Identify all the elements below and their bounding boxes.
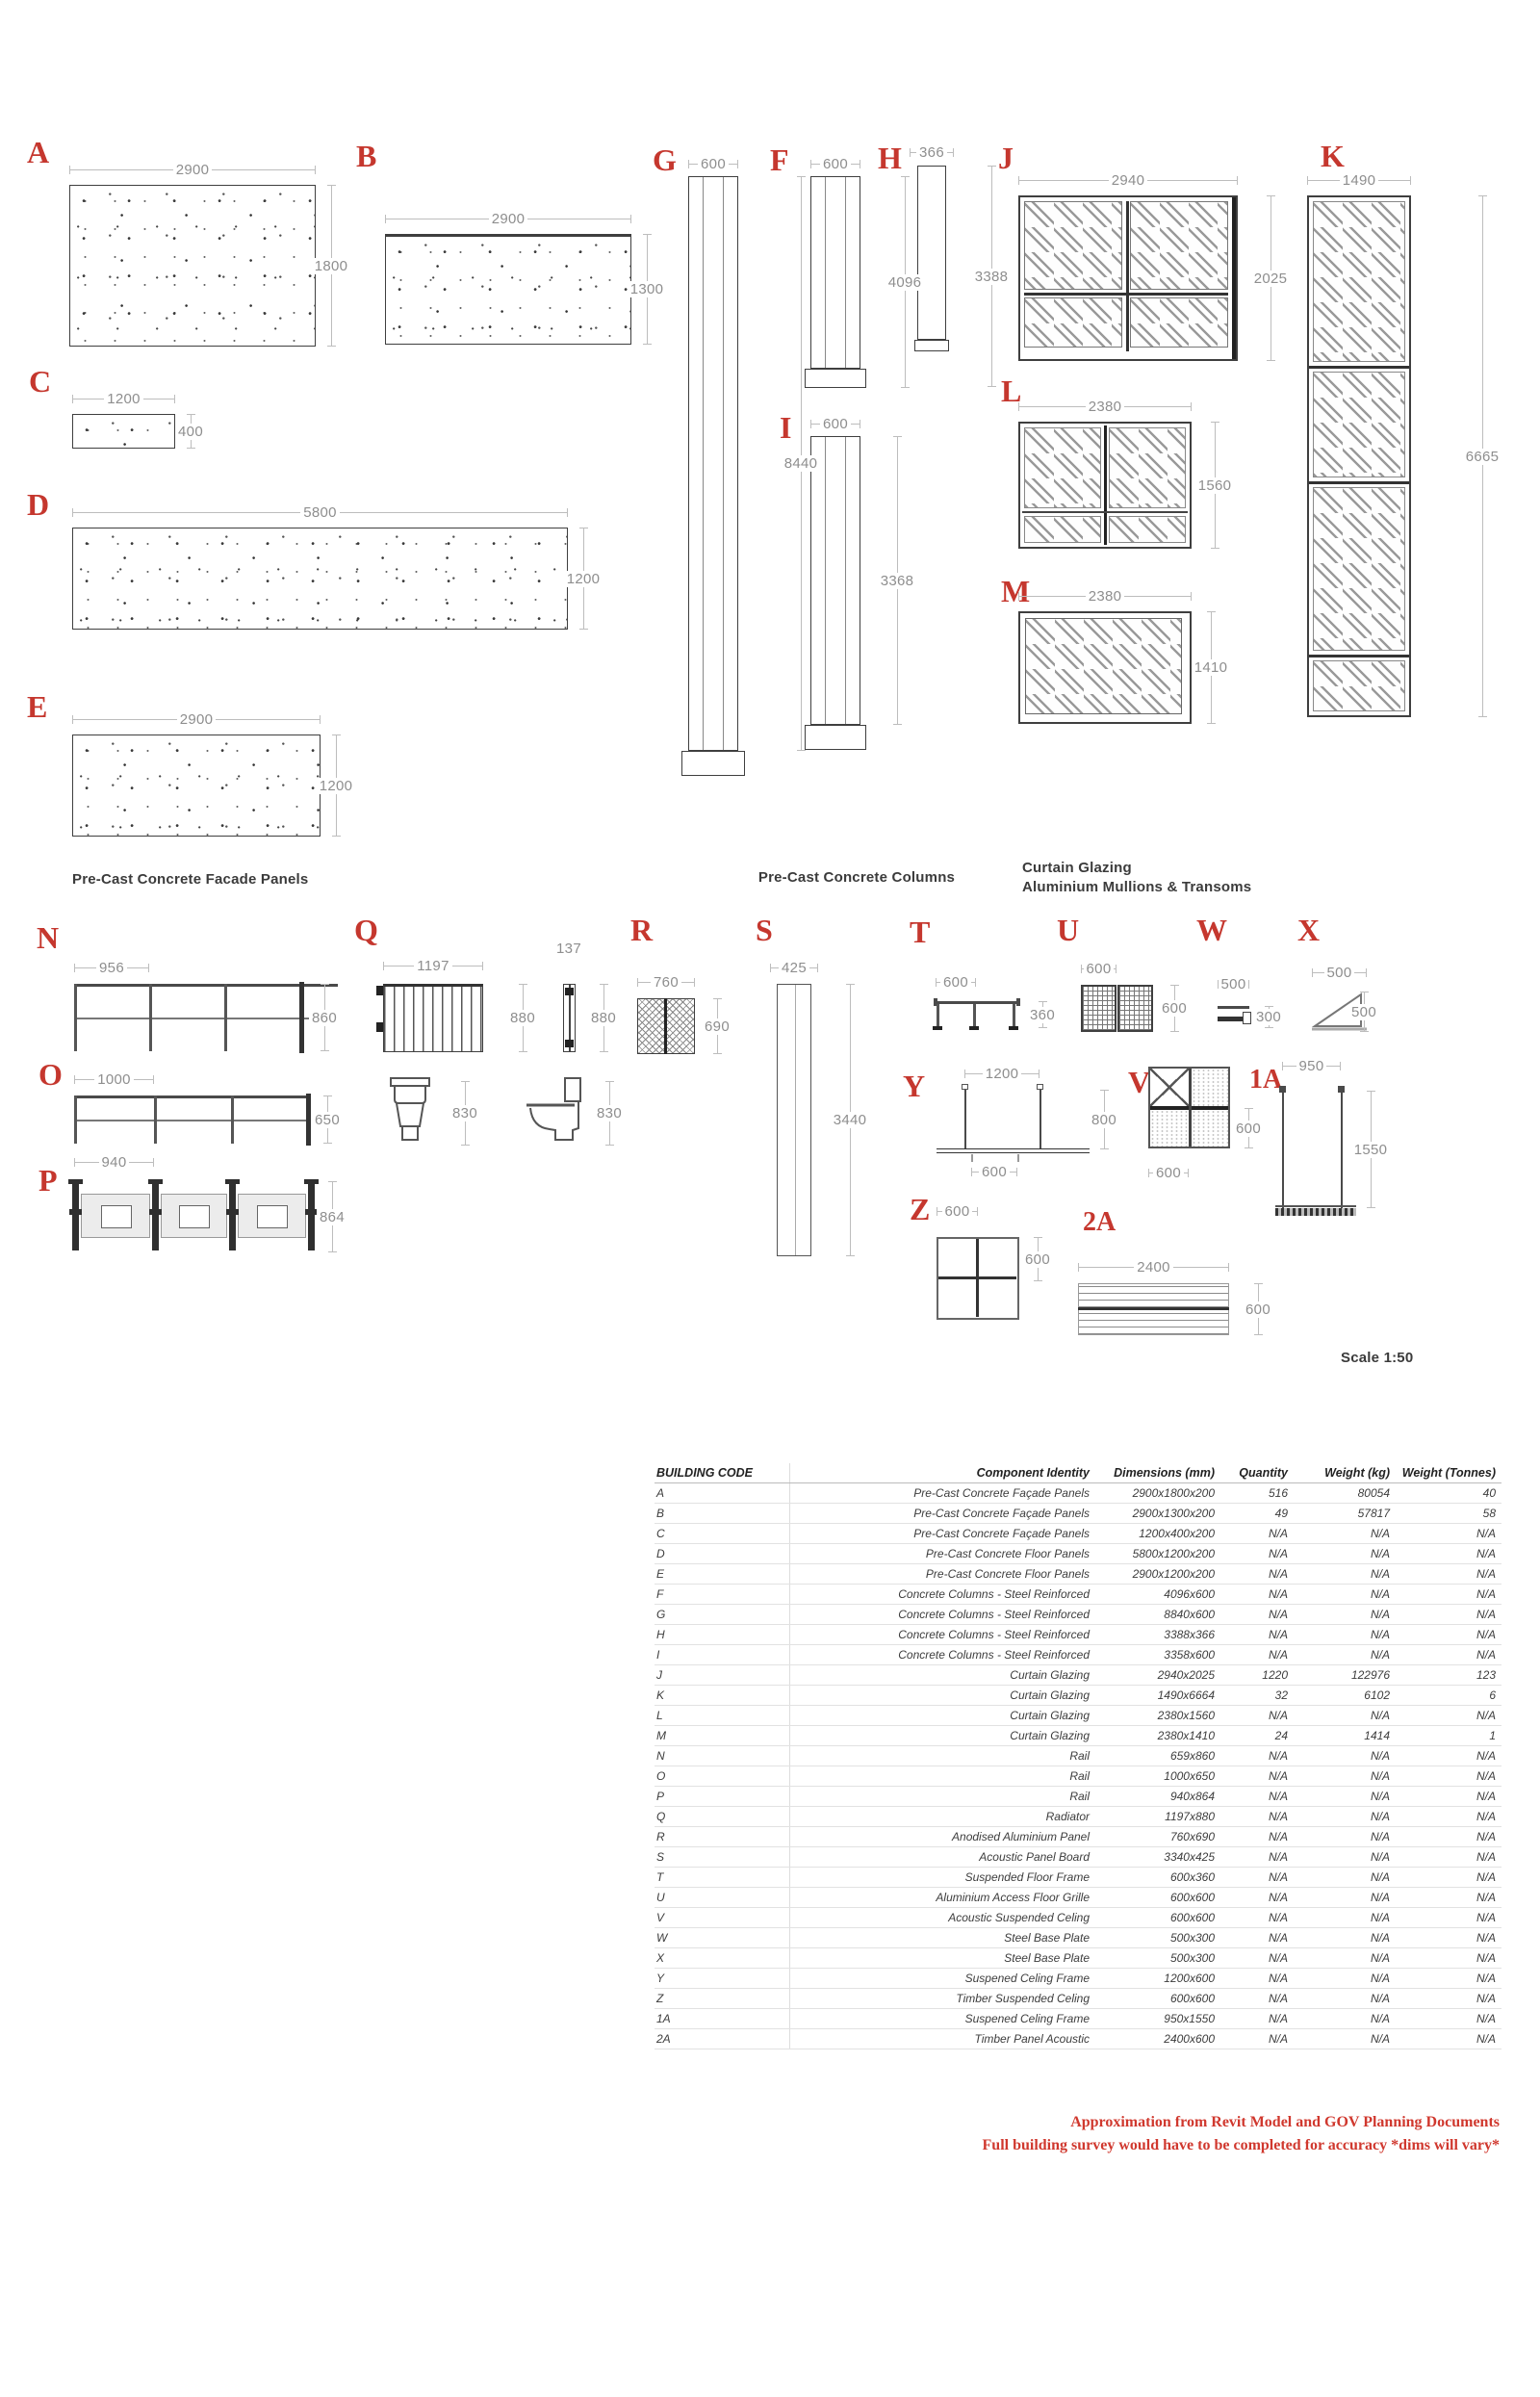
dim-y-width: 1200 — [964, 1066, 1039, 1081]
dim-h-width-label: 366 — [916, 144, 947, 161]
column-f-base — [805, 369, 866, 388]
rail-n-post — [149, 984, 152, 1051]
code-letter-k: K — [1321, 141, 1345, 171]
window-j-pane — [1130, 201, 1228, 290]
table-cell: N/A — [1396, 1766, 1501, 1787]
table-cell: N/A — [1396, 1645, 1501, 1665]
table-cell: N/A — [1220, 1585, 1294, 1605]
dim-e-height: 1200 — [328, 735, 344, 837]
timber-panel-2a-joint — [1078, 1307, 1229, 1310]
table-row: WSteel Base Plate500x300N/AN/AN/A — [654, 1928, 1501, 1948]
table-cell: 940x864 — [1095, 1787, 1220, 1807]
table-cell: N/A — [1294, 1807, 1396, 1827]
window-j — [1018, 195, 1238, 361]
table-cell: 3358x600 — [1095, 1645, 1220, 1665]
table-cell: N/A — [1220, 1564, 1294, 1585]
rail-n-end-post — [299, 982, 304, 1053]
rail-p-panel-opening — [101, 1205, 132, 1228]
table-row: FConcrete Columns - Steel Reinforced4096… — [654, 1585, 1501, 1605]
table-cell: Y — [654, 1969, 789, 1989]
table-cell: N/A — [1396, 1989, 1501, 2009]
window-j-edge — [1232, 197, 1236, 359]
dim-h-height: 3388 — [984, 166, 999, 387]
table-row: IConcrete Columns - Steel Reinforced3358… — [654, 1645, 1501, 1665]
dim-k-height-label: 6665 — [1463, 449, 1502, 465]
rail-o-top — [74, 1095, 310, 1098]
table-cell: F — [654, 1585, 789, 1605]
floor-frame-t-leg — [973, 1004, 976, 1028]
code-letter-w: W — [1196, 915, 1227, 945]
table-cell: N/A — [1396, 1524, 1501, 1544]
floor-frame-t-leg — [937, 1004, 939, 1028]
table-row: 1ASuspened Celing Frame950x1550N/AN/AN/A — [654, 2009, 1501, 2029]
dim-p-width: 940 — [74, 1154, 154, 1170]
table-cell: Curtain Glazing — [789, 1706, 1095, 1726]
rail-p-post-cap — [225, 1179, 240, 1184]
code-letter-p: P — [38, 1165, 58, 1196]
window-l — [1018, 422, 1192, 549]
timber-ceiling-z-rail — [976, 1239, 979, 1317]
table-cell: N/A — [1294, 1605, 1396, 1625]
dim-t-height: 360 — [1035, 1001, 1050, 1028]
window-l-pane — [1024, 516, 1101, 543]
table-cell: P — [654, 1787, 789, 1807]
floor-grille-u — [1081, 985, 1116, 1032]
table-cell: N/A — [1294, 1948, 1396, 1969]
table-cell: N/A — [1396, 1564, 1501, 1585]
table-cell: G — [654, 1605, 789, 1625]
dim-1a-height: 1550 — [1363, 1091, 1378, 1208]
window-k-pane — [1313, 372, 1405, 477]
table-cell: N/A — [1294, 1544, 1396, 1564]
dim-h-height-label: 3388 — [972, 269, 1012, 285]
ceiling-frame-y-tick — [1017, 1154, 1019, 1162]
table-cell: M — [654, 1726, 789, 1746]
table-cell: N/A — [1220, 1888, 1294, 1908]
table-cell: Pre-Cast Concrete Floor Panels — [789, 1564, 1095, 1585]
table-cell: N/A — [1294, 1766, 1396, 1787]
dim-o-height-label: 650 — [312, 1112, 343, 1128]
table-cell: Aluminium Access Floor Grille — [789, 1888, 1095, 1908]
rail-p-post — [229, 1183, 236, 1250]
table-cell: 600x360 — [1095, 1868, 1220, 1888]
dim-o-height: 650 — [320, 1095, 335, 1144]
dim-b-height-label: 1300 — [628, 281, 667, 297]
table-cell: Curtain Glazing — [789, 1665, 1095, 1686]
code-letter-c: C — [29, 366, 51, 397]
dim-t-width-label: 600 — [940, 974, 971, 991]
table-cell: N/A — [1220, 1787, 1294, 1807]
ceiling-frame-1a-rod — [1282, 1091, 1284, 1208]
table-cell: Concrete Columns - Steel Reinforced — [789, 1605, 1095, 1625]
dim-j-height-label: 2025 — [1251, 271, 1291, 287]
caption-facade-panels: Pre-Cast Concrete Facade Panels — [72, 871, 308, 888]
caption-concrete-columns: Pre-Cast Concrete Columns — [696, 869, 1017, 886]
dim-o-width: 1000 — [74, 1071, 154, 1087]
dim-x-width: 500 — [1312, 965, 1367, 980]
table-cell: N/A — [1220, 1847, 1294, 1868]
dim-r-width: 760 — [637, 974, 695, 990]
dim-w-width: 500 — [1218, 976, 1249, 992]
dim-d-width: 5800 — [72, 504, 568, 520]
dim-q-wc-front-height: 830 — [457, 1081, 473, 1146]
radiator-valve — [376, 1022, 383, 1032]
code-letter-f: F — [770, 144, 789, 175]
dim-z-width: 600 — [937, 1203, 978, 1219]
table-cell: N/A — [1220, 1827, 1294, 1847]
timber-ceiling-z — [937, 1237, 1019, 1320]
dim-q-front-height-label: 880 — [507, 1010, 538, 1026]
dim-2a-width: 2400 — [1078, 1259, 1229, 1275]
table-cell: 5800x1200x200 — [1095, 1544, 1220, 1564]
ceiling-frame-y-hanger — [964, 1090, 966, 1148]
table-row: TSuspended Floor Frame600x360N/AN/AN/A — [654, 1868, 1501, 1888]
drawing-sheet: A 2900 1800 B 2900 1300 C 1200 400 D 580… — [0, 0, 1540, 2397]
table-cell: N/A — [1294, 1908, 1396, 1928]
ceiling-frame-y-tick — [971, 1154, 973, 1162]
dim-z-width-label: 600 — [942, 1203, 973, 1220]
window-k-pane — [1313, 487, 1405, 651]
dim-d-height: 1200 — [576, 528, 591, 630]
table-cell: B — [654, 1504, 789, 1524]
table-cell: U — [654, 1888, 789, 1908]
code-letter-o: O — [38, 1059, 63, 1090]
dim-f-height: 4096 — [897, 176, 912, 388]
dim-y-height-label: 800 — [1089, 1112, 1119, 1128]
table-cell: J — [654, 1665, 789, 1686]
window-j-pane — [1024, 201, 1122, 290]
scale-note: Scale 1:50 — [1341, 1350, 1413, 1366]
dim-q-wc-side-height: 830 — [602, 1081, 617, 1146]
table-row: CPre-Cast Concrete Façade Panels1200x400… — [654, 1524, 1501, 1544]
table-row: DPre-Cast Concrete Floor Panels5800x1200… — [654, 1544, 1501, 1564]
dim-u-height: 600 — [1167, 985, 1182, 1032]
window-j-pane — [1130, 297, 1228, 348]
table-cell: Pre-Cast Concrete Façade Panels — [789, 1504, 1095, 1524]
table-cell: N/A — [1294, 1564, 1396, 1585]
table-cell: 2400x600 — [1095, 2029, 1220, 2049]
radiator-valve — [376, 986, 383, 995]
dim-t-height-label: 360 — [1027, 1007, 1058, 1023]
table-cell: N/A — [1220, 1989, 1294, 2009]
dim-g-width-label: 600 — [698, 156, 729, 172]
table-row: GConcrete Columns - Steel Reinforced8840… — [654, 1605, 1501, 1625]
rail-o-post — [231, 1095, 234, 1144]
table-cell: 6 — [1396, 1686, 1501, 1706]
table-cell: N/A — [1396, 1827, 1501, 1847]
dim-f-width: 600 — [810, 156, 860, 171]
rail-n-top — [74, 984, 338, 987]
table-cell: N/A — [1220, 1706, 1294, 1726]
table-cell: Steel Base Plate — [789, 1948, 1095, 1969]
dim-m-width-label: 2380 — [1086, 588, 1125, 605]
dim-p-width-label: 940 — [99, 1154, 130, 1171]
table-row: EPre-Cast Concrete Floor Panels2900x1200… — [654, 1564, 1501, 1585]
component-table-body: APre-Cast Concrete Façade Panels2900x180… — [654, 1483, 1501, 2049]
window-k-pane — [1313, 201, 1405, 362]
table-cell: Q — [654, 1807, 789, 1827]
rail-p-clamp — [149, 1209, 162, 1215]
footnote-line-1: Approximation from Revit Model and GOV P… — [654, 2114, 1500, 2131]
dim-g-height: 8440 — [793, 176, 808, 751]
table-cell: T — [654, 1868, 789, 1888]
table-cell: 950x1550 — [1095, 2009, 1220, 2029]
dim-c-height-label: 400 — [175, 424, 206, 440]
code-letter-x: X — [1297, 915, 1320, 945]
rail-p-post — [308, 1183, 315, 1250]
table-row: SAcoustic Panel Board3340x425N/AN/AN/A — [654, 1847, 1501, 1868]
rail-p-clamp — [69, 1209, 82, 1215]
table-cell: N/A — [1396, 1807, 1501, 1827]
dim-v-width: 600 — [1148, 1165, 1189, 1180]
table-cell: 2900x1300x200 — [1095, 1504, 1220, 1524]
table-cell: N/A — [1220, 1524, 1294, 1544]
dim-z-height-label: 600 — [1022, 1251, 1053, 1268]
code-letter-s: S — [756, 915, 773, 945]
dim-b-width-label: 2900 — [489, 211, 528, 227]
table-cell: N/A — [1396, 1605, 1501, 1625]
column-g-base — [681, 751, 745, 776]
table-cell: N/A — [1396, 1847, 1501, 1868]
dim-q-wc-front-height-label: 830 — [449, 1105, 480, 1121]
table-row: APre-Cast Concrete Façade Panels2900x180… — [654, 1483, 1501, 1504]
table-cell: N/A — [1220, 1868, 1294, 1888]
window-l-pane — [1109, 427, 1186, 508]
rail-p-panel — [81, 1194, 150, 1238]
table-cell: L — [654, 1706, 789, 1726]
dim-f-width-label: 600 — [820, 156, 851, 172]
table-cell: N/A — [1220, 1807, 1294, 1827]
table-cell: 80054 — [1294, 1483, 1396, 1504]
table-cell: 3388x366 — [1095, 1625, 1220, 1645]
table-cell: N/A — [1294, 2029, 1396, 2049]
table-cell: Rail — [789, 1787, 1095, 1807]
code-letter-y: Y — [903, 1070, 925, 1101]
table-cell: 2940x2025 — [1095, 1665, 1220, 1686]
window-m — [1018, 611, 1192, 724]
table-cell: 760x690 — [1095, 1827, 1220, 1847]
dim-u-height-label: 600 — [1159, 1000, 1190, 1017]
table-cell: N/A — [1294, 1706, 1396, 1726]
table-cell: Anodised Aluminium Panel — [789, 1827, 1095, 1847]
dim-q-front-width-label: 1197 — [414, 958, 451, 974]
table-cell: N/A — [1294, 1645, 1396, 1665]
table-cell: N/A — [1294, 1969, 1396, 1989]
dim-k-height: 6665 — [1475, 195, 1490, 717]
dim-n-width: 956 — [74, 960, 149, 975]
dim-i-height: 3368 — [889, 436, 905, 725]
dim-y-module: 600 — [971, 1164, 1017, 1179]
floor-grille-u — [1117, 985, 1153, 1032]
table-cell: Radiator — [789, 1807, 1095, 1827]
table-row: LCurtain Glazing2380x1560N/AN/AN/A — [654, 1706, 1501, 1726]
dim-b-height: 1300 — [639, 234, 654, 345]
table-cell: Concrete Columns - Steel Reinforced — [789, 1585, 1095, 1605]
table-cell: Curtain Glazing — [789, 1726, 1095, 1746]
rail-o-post — [74, 1095, 77, 1144]
dim-a-width: 2900 — [69, 162, 316, 177]
window-l-transom — [1022, 511, 1188, 513]
table-cell: N/A — [1294, 1787, 1396, 1807]
dim-i-width: 600 — [810, 416, 860, 431]
table-cell: N/A — [1396, 1746, 1501, 1766]
table-cell: Steel Base Plate — [789, 1928, 1095, 1948]
dim-j-width-label: 2940 — [1109, 172, 1148, 189]
ceiling-frame-1a-rod — [1341, 1091, 1343, 1208]
table-cell: N/A — [1294, 1585, 1396, 1605]
dim-m-height: 1410 — [1203, 611, 1219, 724]
table-row: JCurtain Glazing2940x20251220122976123 — [654, 1665, 1501, 1686]
dim-x-width-label: 500 — [1324, 965, 1355, 981]
window-k-transom — [1309, 481, 1409, 484]
floor-frame-t-leg — [1013, 1004, 1015, 1028]
table-cell: Suspened Celing Frame — [789, 1969, 1095, 1989]
table-cell: N/A — [1294, 1524, 1396, 1544]
table-header-weight-kg: Weight (kg) — [1294, 1463, 1396, 1483]
rail-p-clamp — [226, 1209, 239, 1215]
table-cell: N/A — [1294, 1888, 1396, 1908]
window-k-transom — [1309, 655, 1409, 657]
table-cell: Acoustic Panel Board — [789, 1847, 1095, 1868]
dim-e-height-label: 1200 — [317, 778, 356, 794]
dim-a-width-label: 2900 — [173, 162, 213, 178]
table-row: NRail659x860N/AN/AN/A — [654, 1746, 1501, 1766]
acoustic-ceiling-v — [1148, 1067, 1230, 1148]
column-h — [917, 166, 946, 340]
dim-j-height: 2025 — [1263, 195, 1278, 361]
table-row: YSuspened Celing Frame1200x600N/AN/AN/A — [654, 1969, 1501, 1989]
dim-g-height-label: 8440 — [782, 455, 821, 472]
table-cell: N/A — [1294, 1989, 1396, 2009]
table-row: UAluminium Access Floor Grille600x600N/A… — [654, 1888, 1501, 1908]
table-cell: R — [654, 1827, 789, 1847]
table-cell: N/A — [1220, 1544, 1294, 1564]
dim-a-height: 1800 — [323, 185, 339, 347]
rail-p-post — [152, 1183, 159, 1250]
table-cell: X — [654, 1948, 789, 1969]
dim-a-height-label: 1800 — [312, 258, 351, 274]
dim-1a-width: 950 — [1282, 1058, 1341, 1073]
table-cell: 2900x1800x200 — [1095, 1483, 1220, 1504]
footnote-line-2: Full building survey would have to be co… — [654, 2137, 1500, 2154]
dim-i-width-label: 600 — [820, 416, 851, 432]
ceiling-frame-y-rail — [937, 1148, 1090, 1153]
table-cell: N/A — [1396, 2029, 1501, 2049]
dim-2a-height: 600 — [1250, 1283, 1266, 1335]
code-letter-a: A — [27, 137, 49, 168]
dim-r-height: 690 — [709, 998, 725, 1054]
table-row: HConcrete Columns - Steel Reinforced3388… — [654, 1625, 1501, 1645]
dim-k-width-label: 1490 — [1340, 172, 1379, 189]
window-j-pane — [1024, 297, 1122, 348]
acoustic-ceiling-v-tile — [1150, 1069, 1189, 1106]
dim-r-width-label: 760 — [651, 974, 681, 991]
code-letter-n: N — [37, 922, 59, 953]
panel-d — [72, 528, 568, 630]
table-cell: N/A — [1220, 1625, 1294, 1645]
table-cell: Rail — [789, 1746, 1095, 1766]
table-cell: N/A — [1396, 1908, 1501, 1928]
dim-n-width-label: 956 — [96, 960, 127, 976]
table-cell: Rail — [789, 1766, 1095, 1787]
code-letter-b: B — [356, 141, 376, 171]
table-cell: Pre-Cast Concrete Façade Panels — [789, 1524, 1095, 1544]
table-cell: Suspended Floor Frame — [789, 1868, 1095, 1888]
dim-v-height-label: 600 — [1233, 1121, 1264, 1137]
dim-e-width-label: 2900 — [177, 711, 217, 728]
table-cell: N/A — [1220, 1928, 1294, 1948]
panel-c — [72, 414, 175, 449]
table-cell: N/A — [1396, 1928, 1501, 1948]
table-cell: 659x860 — [1095, 1746, 1220, 1766]
table-cell: N/A — [1220, 2029, 1294, 2049]
table-cell: C — [654, 1524, 789, 1544]
dim-l-width-label: 2380 — [1086, 399, 1125, 415]
table-cell: 58 — [1396, 1504, 1501, 1524]
table-cell: O — [654, 1766, 789, 1787]
dim-x-height: 500 — [1356, 992, 1372, 1032]
dim-q-front-width: 1197 — [383, 958, 483, 973]
window-l-pane — [1109, 516, 1186, 543]
rail-n-mid — [74, 1018, 338, 1019]
code-letter-g: G — [653, 144, 677, 175]
rail-p-post-cap — [148, 1179, 163, 1184]
dim-1a-height-label: 1550 — [1351, 1142, 1391, 1158]
dim-u-width-label: 600 — [1084, 961, 1115, 977]
dim-h-width: 366 — [910, 144, 954, 160]
dim-y-width-label: 1200 — [983, 1066, 1022, 1082]
column-f — [810, 176, 860, 369]
code-letter-2a: 2A — [1083, 1209, 1116, 1236]
table-cell: 2380x1410 — [1095, 1726, 1220, 1746]
floor-frame-t-cap — [1016, 998, 1020, 1006]
table-cell: A — [654, 1483, 789, 1504]
table-cell: D — [654, 1544, 789, 1564]
rail-p-panel-opening — [179, 1205, 210, 1228]
dim-w-height-label: 300 — [1253, 1009, 1284, 1025]
dim-b-width: 2900 — [385, 211, 631, 226]
dim-m-height-label: 1410 — [1192, 659, 1231, 676]
acoustic-ceiling-v-tile — [1150, 1110, 1189, 1147]
table-cell: Suspened Celing Frame — [789, 2009, 1095, 2029]
rail-n-post — [224, 984, 227, 1051]
table-cell: Timber Panel Acoustic — [789, 2029, 1095, 2049]
table-cell: Curtain Glazing — [789, 1686, 1095, 1706]
table-cell: 1A — [654, 2009, 789, 2029]
floor-frame-t-foot — [933, 1026, 942, 1030]
caption-curtain-glazing: Curtain Glazing — [1022, 860, 1132, 876]
code-letter-t: T — [910, 916, 930, 947]
dim-s-width: 425 — [770, 960, 818, 975]
table-cell: N/A — [1396, 1969, 1501, 1989]
table-cell: 516 — [1220, 1483, 1294, 1504]
code-letter-v: V — [1128, 1067, 1150, 1097]
dim-k-width: 1490 — [1307, 172, 1411, 188]
table-row: XSteel Base Plate500x300N/AN/AN/A — [654, 1948, 1501, 1969]
table-cell: Pre-Cast Concrete Façade Panels — [789, 1483, 1095, 1504]
table-cell: 1490x6664 — [1095, 1686, 1220, 1706]
table-row: ORail1000x650N/AN/AN/A — [654, 1766, 1501, 1787]
column-i — [810, 436, 860, 725]
panel-e — [72, 735, 321, 837]
table-cell: K — [654, 1686, 789, 1706]
panel-a — [69, 185, 316, 347]
dim-q-side-height: 880 — [596, 984, 611, 1052]
table-cell: Concrete Columns - Steel Reinforced — [789, 1625, 1095, 1645]
dim-z-height: 600 — [1030, 1237, 1045, 1281]
table-cell: N/A — [1396, 1888, 1501, 1908]
table-cell: 32 — [1220, 1686, 1294, 1706]
